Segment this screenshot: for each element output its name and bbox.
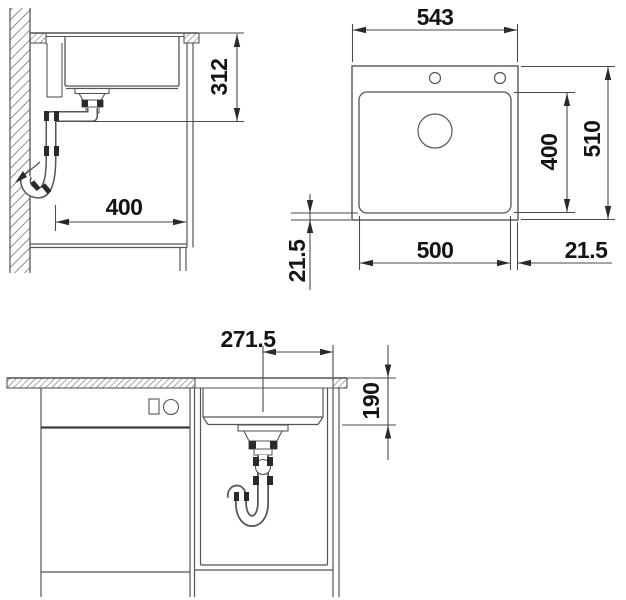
counter-cut-left (30, 33, 46, 43)
bowl-side-section (65, 37, 179, 89)
dim-label-21-5-left: 21.5 (284, 239, 310, 282)
dim-21-5-right: 21.5 (518, 222, 613, 270)
front-section-view: 271.5 190 (7, 326, 396, 597)
trap-pipe-front (233, 425, 288, 521)
drain-hole (418, 114, 452, 148)
sink-rear-wall (47, 43, 62, 97)
dim-label-510: 510 (579, 121, 605, 158)
dim-label-400-plan: 400 (536, 134, 562, 171)
dim-label-21-5-right: 21.5 (565, 237, 608, 263)
dim-271-5: 271.5 (220, 326, 333, 412)
technical-drawing-page: 312 400 543 (0, 0, 626, 600)
tap-hole-right (495, 73, 506, 84)
counter-front-left (7, 378, 195, 388)
dim-label-190: 190 (358, 383, 384, 420)
sink-installation-drawing: 312 400 543 (0, 0, 626, 600)
dim-label-312: 312 (206, 59, 232, 96)
dishwasher-cabinet (41, 388, 190, 597)
side-section-view: 312 400 (10, 8, 244, 273)
sink-outline (352, 66, 518, 220)
top-plan-view: 543 510 400 500 (284, 4, 615, 290)
dim-500: 500 (360, 216, 511, 270)
dim-label-271-5: 271.5 (220, 326, 276, 352)
wall-hatch (10, 8, 30, 273)
dim-190: 190 (342, 345, 396, 460)
tap-hole-center (430, 73, 441, 84)
dim-label-543: 543 (417, 4, 454, 30)
counter-front-right (333, 378, 347, 388)
bowl-outline (359, 92, 511, 213)
dim-label-400-side: 400 (106, 194, 143, 220)
counter-cut-right (184, 33, 199, 43)
dim-400-plan: 400 (514, 93, 575, 213)
dim-21-5-left: 21.5 (284, 194, 358, 290)
dim-400-side: 400 (56, 194, 187, 231)
dim-312: 312 (85, 33, 244, 122)
dim-543: 543 (353, 4, 518, 62)
dim-label-500: 500 (417, 237, 454, 263)
